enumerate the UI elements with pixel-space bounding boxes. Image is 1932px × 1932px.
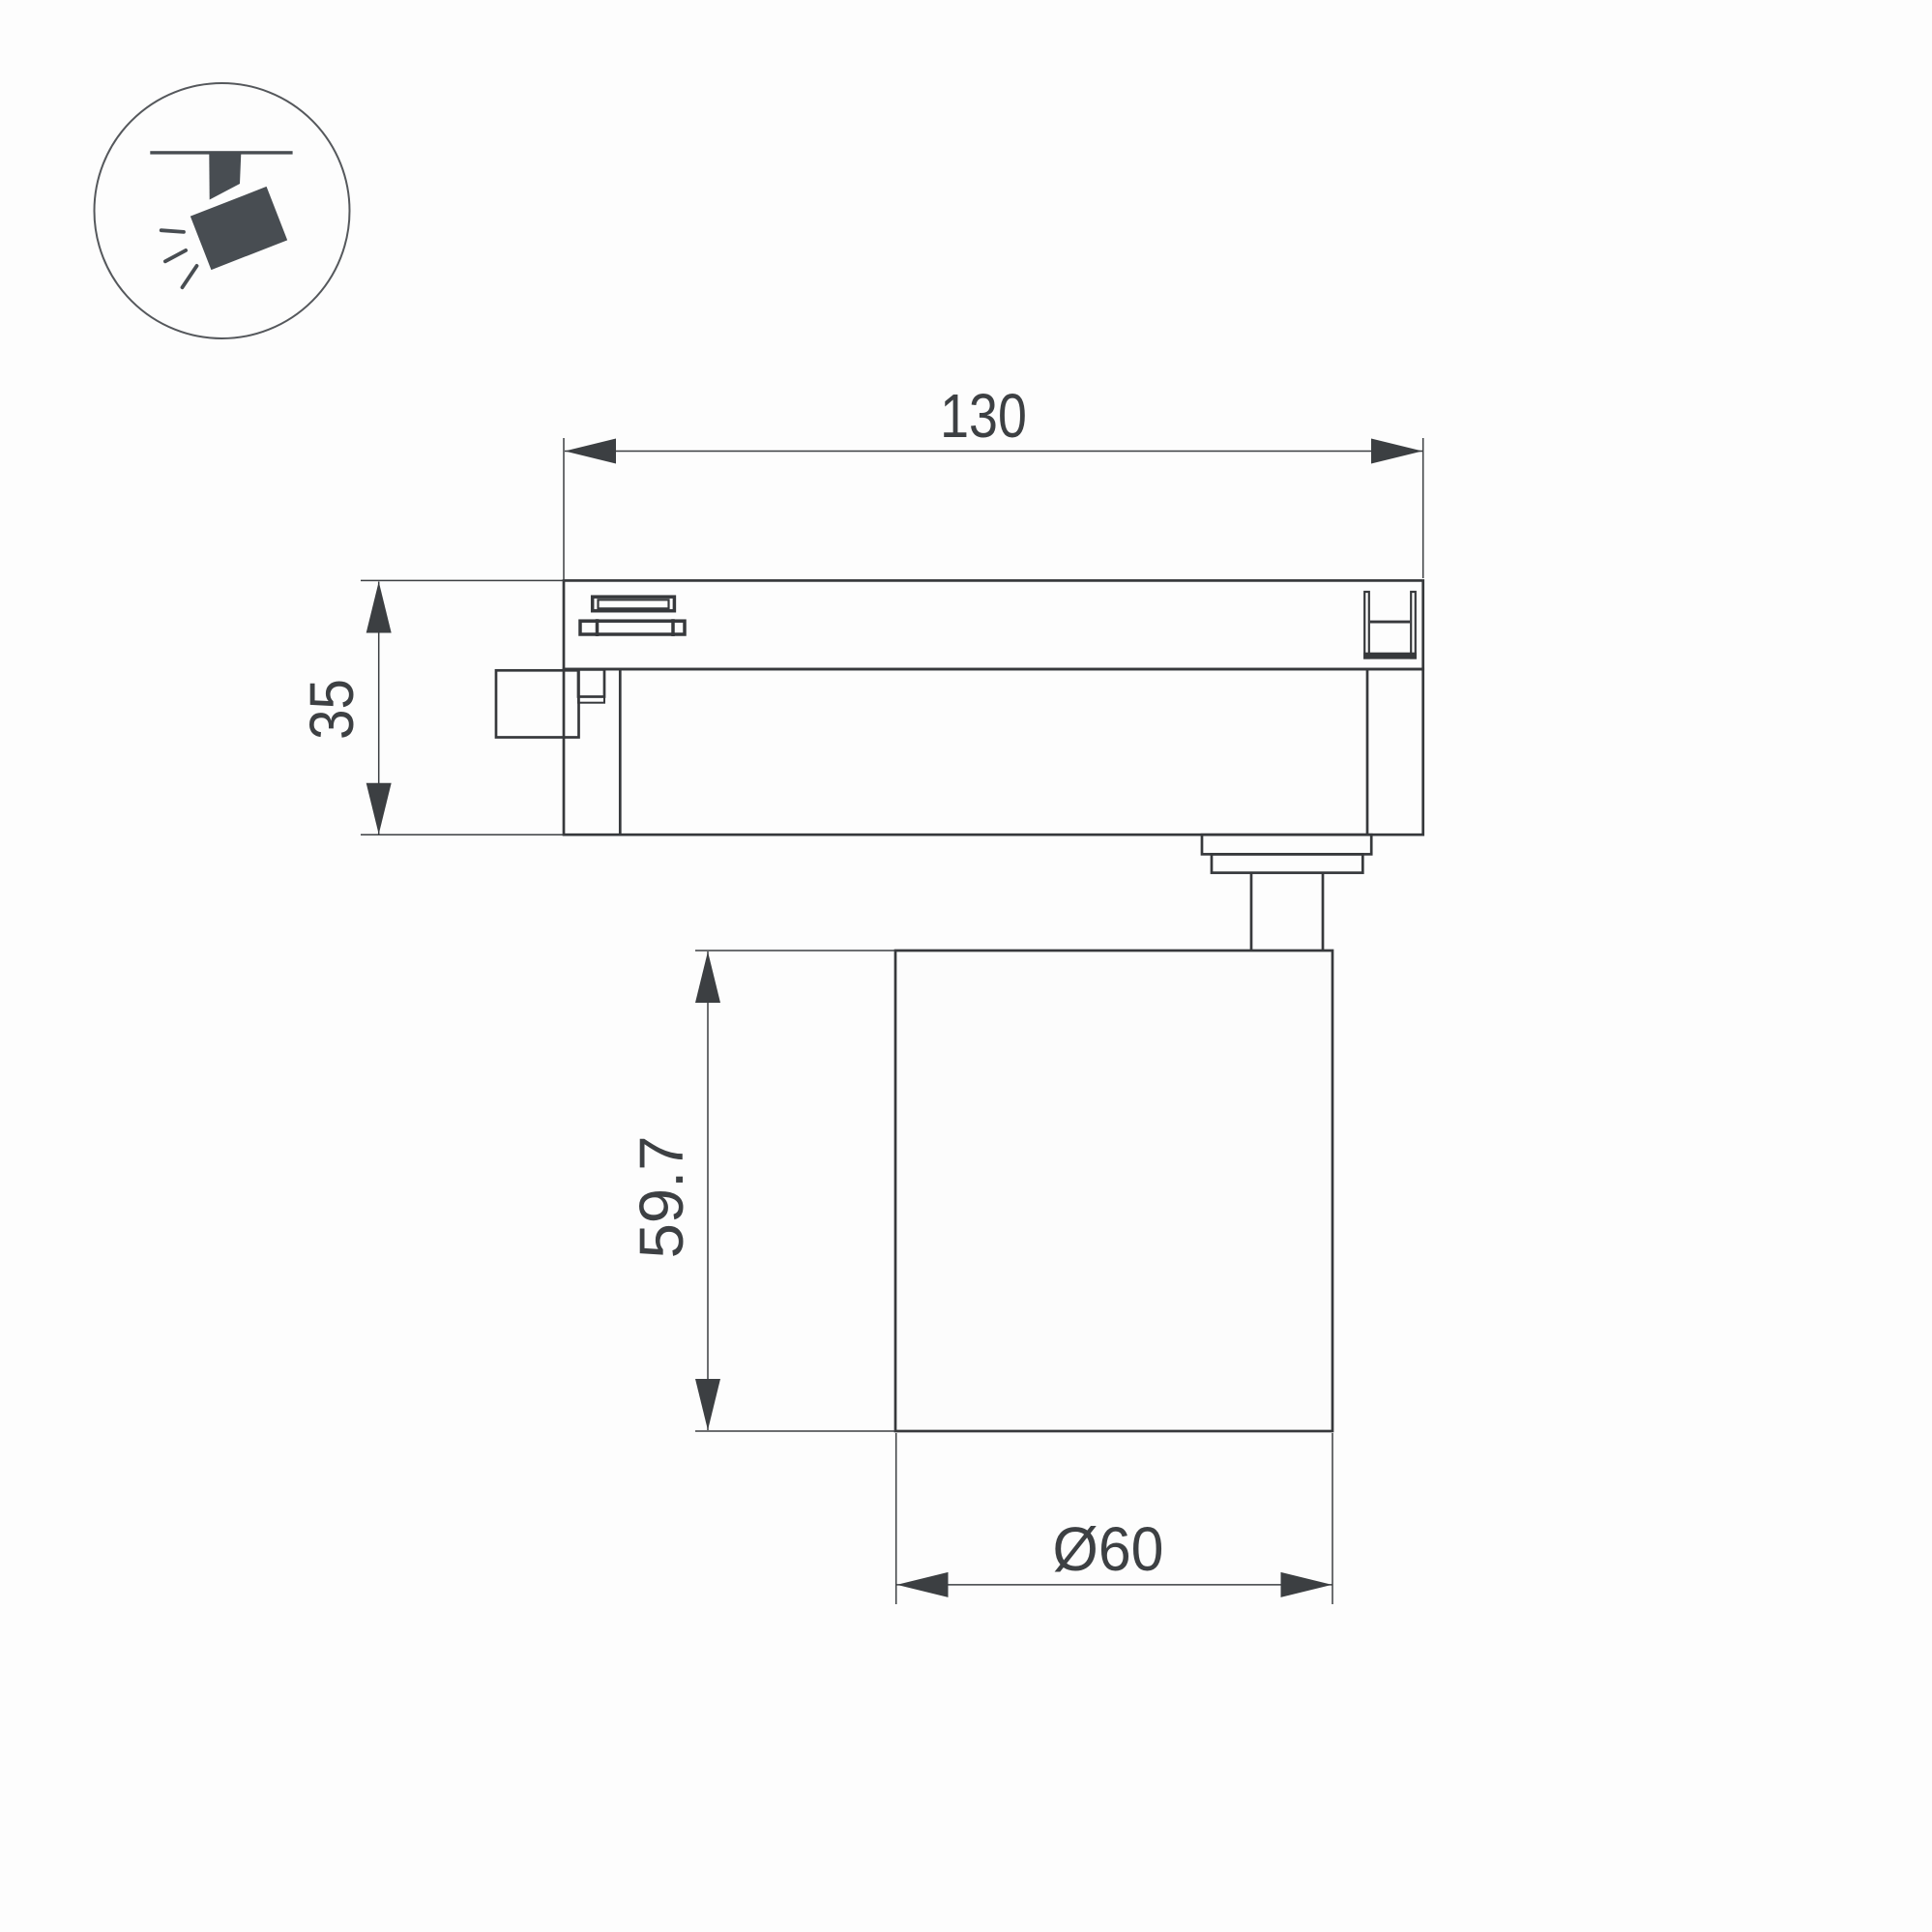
svg-text:59.7: 59.7 <box>627 1135 696 1258</box>
svg-text:Ø60: Ø60 <box>1053 1515 1164 1585</box>
svg-text:130: 130 <box>940 381 1027 452</box>
svg-text:35: 35 <box>297 679 366 740</box>
